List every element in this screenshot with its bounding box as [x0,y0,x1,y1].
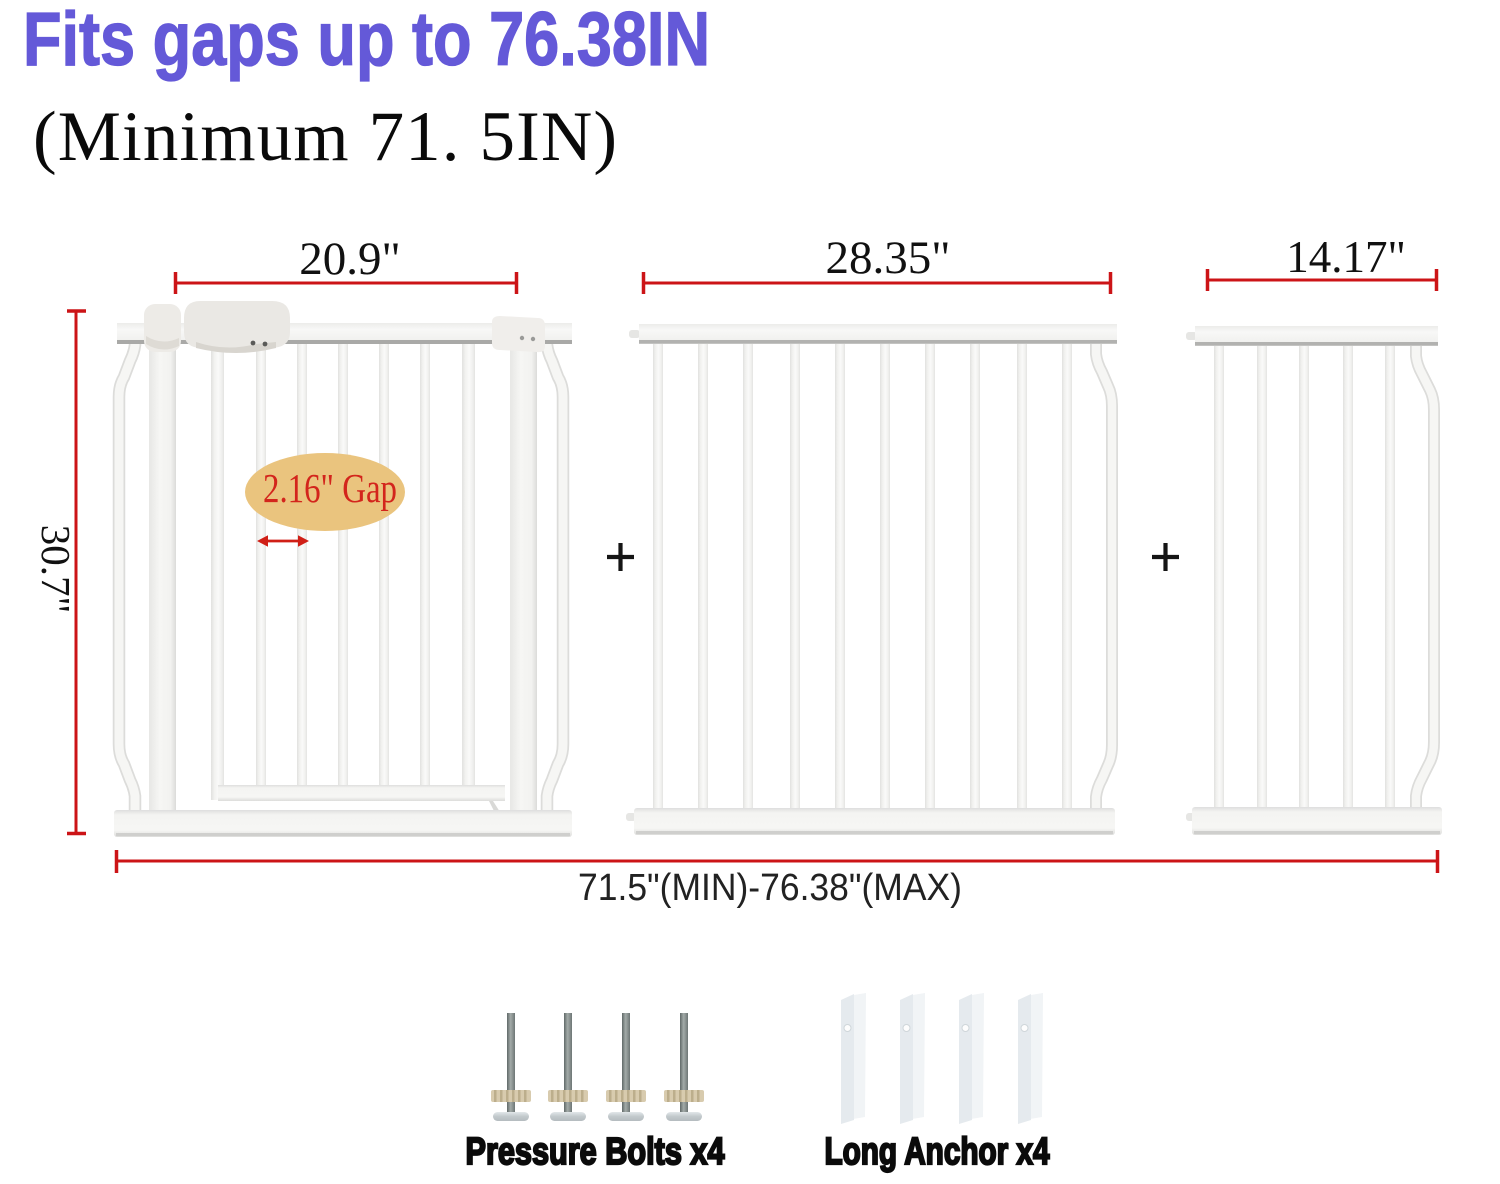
svg-text:Fits gaps up to 76.38IN: Fits gaps up to 76.38IN [23,0,710,82]
svg-text:71.5"(MIN)-76.38"(MAX): 71.5"(MIN)-76.38"(MAX) [578,867,962,909]
svg-text:28.35": 28.35" [826,232,951,284]
svg-text:(Minimum 71. 5IN): (Minimum 71. 5IN) [33,98,617,176]
svg-text:14.17": 14.17" [1286,232,1406,282]
svg-text:2.16" Gap: 2.16" Gap [263,465,397,511]
svg-text:30.7": 30.7" [33,525,79,614]
svg-text:20.9": 20.9" [299,233,400,285]
svg-text:Long Anchor x4: Long Anchor x4 [825,1131,1050,1173]
svg-text:Pressure Bolts x4: Pressure Bolts x4 [466,1131,725,1173]
